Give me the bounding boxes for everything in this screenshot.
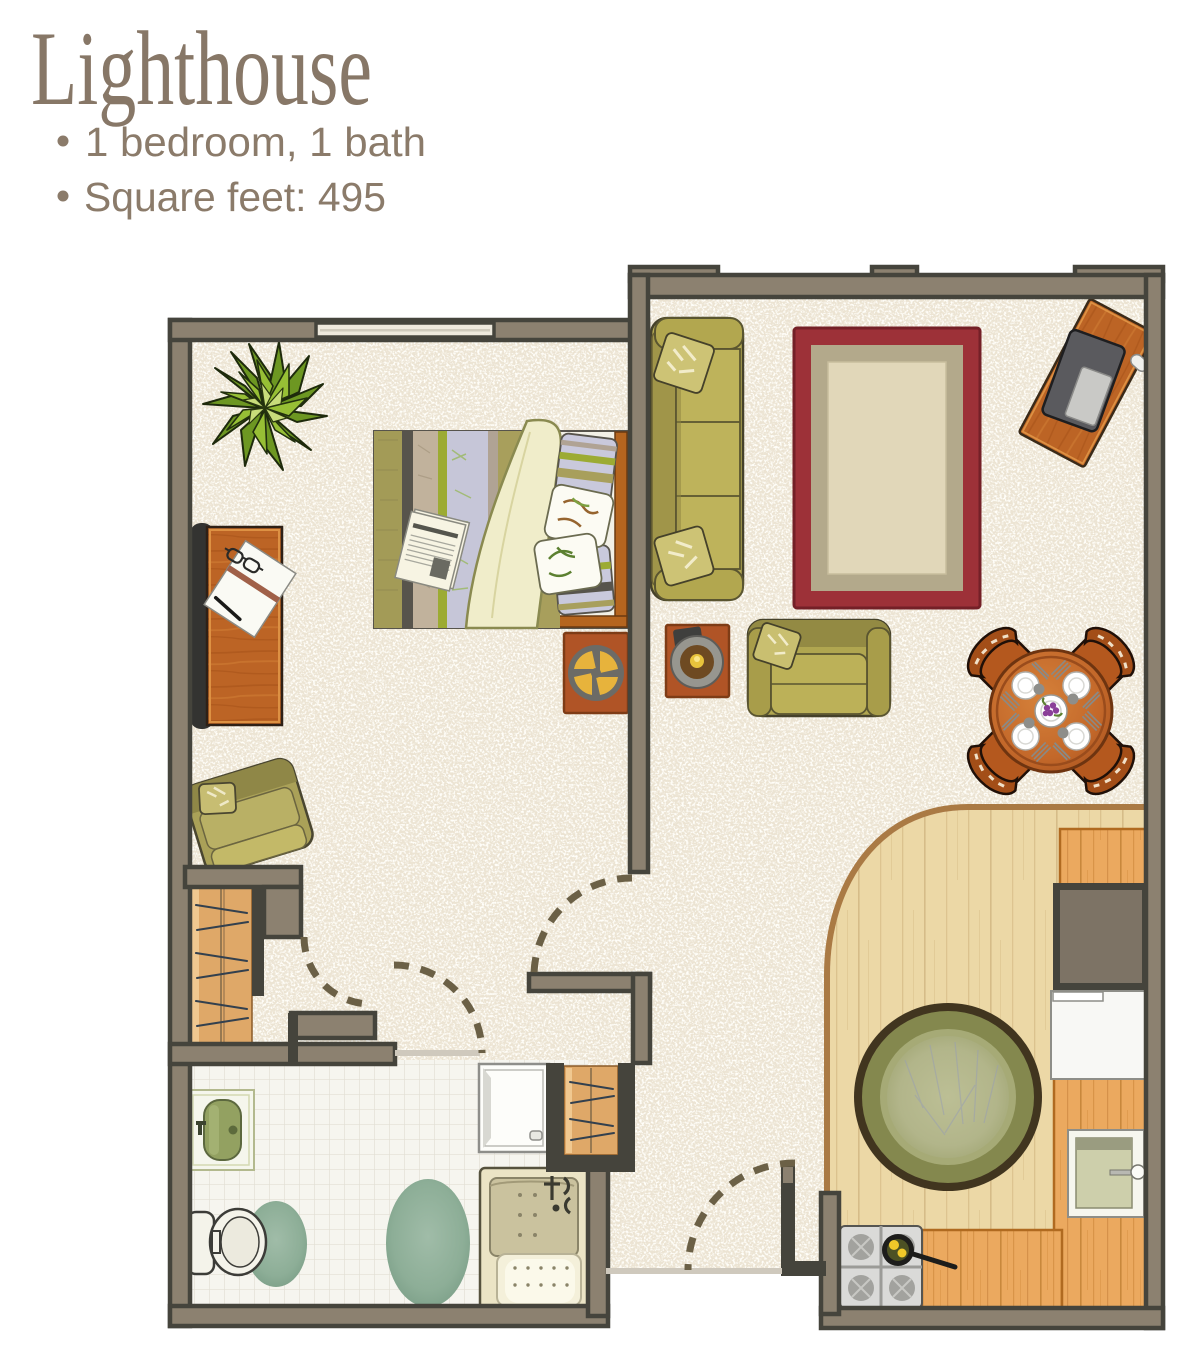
svg-text:1 bedroom, 1 bath: 1 bedroom, 1 bath [85, 119, 426, 165]
svg-text:Lighthouse: Lighthouse [31, 10, 372, 127]
svg-text:Square feet: 495: Square feet: 495 [84, 174, 386, 220]
